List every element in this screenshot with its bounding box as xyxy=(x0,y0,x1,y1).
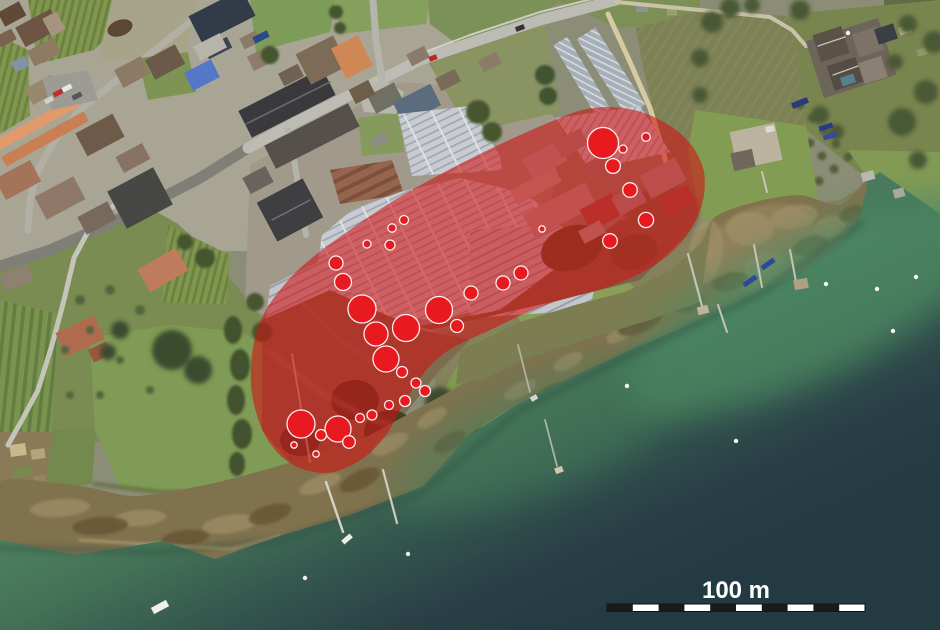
svg-text:100 m: 100 m xyxy=(702,577,770,604)
